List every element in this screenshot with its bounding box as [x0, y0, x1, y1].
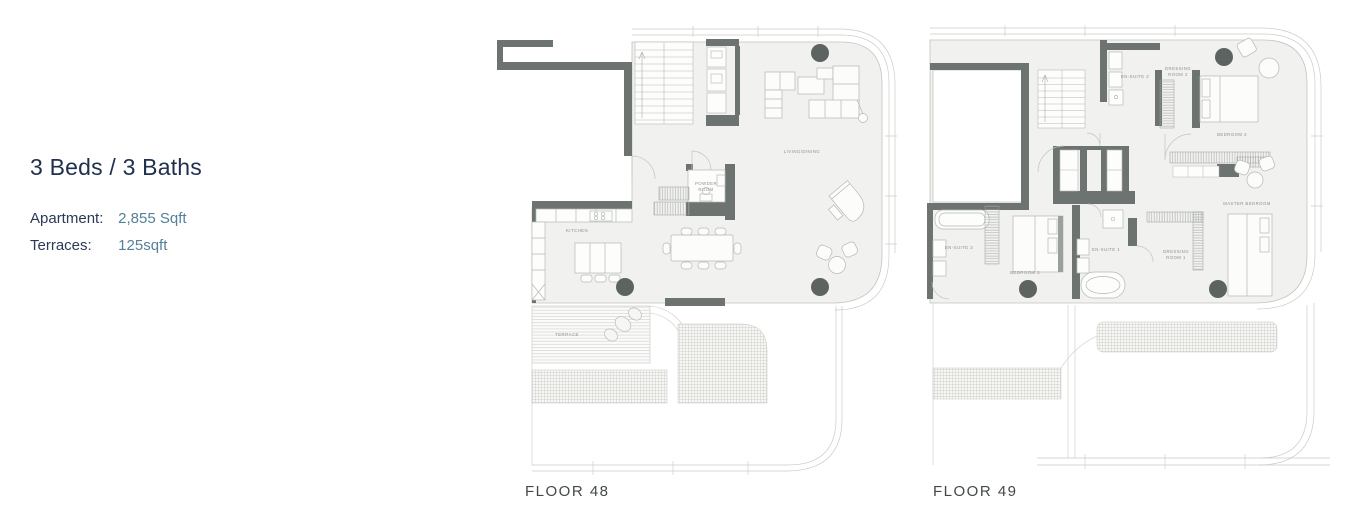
- bedroom-3-label: BEDROOM 3: [1010, 270, 1040, 275]
- bedroom-2-label: BEDROOM 2: [1217, 132, 1247, 137]
- floor-48-drawing: LIVING/DINING KITCHEN POWDER ROOM TERRAC…: [493, 6, 913, 476]
- staircase: [635, 42, 693, 124]
- dressing-room-1-label-line1: DRESSING: [1163, 249, 1189, 254]
- en-suite-2-label: EN-SUITE 2: [1121, 74, 1149, 79]
- dressing-room-1-label-line2: ROOM 1: [1166, 255, 1186, 260]
- en-suite-1-label: EN-SUITE 1: [1092, 247, 1120, 252]
- utility-closet: [707, 47, 726, 113]
- en-suite-3-label: EN-SUITE 3: [945, 245, 973, 250]
- master-bedroom-label: MASTER BEDROOM: [1223, 201, 1271, 206]
- floorplan-floor-48: LIVING/DINING KITCHEN POWDER ROOM TERRAC…: [493, 6, 913, 520]
- unit-title: 3 Beds / 3 Baths: [30, 154, 202, 181]
- site-outline: [933, 303, 1330, 469]
- powder-room-label-line2: ROOM: [698, 187, 713, 192]
- floorplan-floor-49: EN-SUITE 2 DRESSING ROOM 2 BEDROOM 2 MAS…: [925, 6, 1345, 520]
- dressing-room-2-wardrobe: [1160, 80, 1174, 128]
- unit-info: 3 Beds / 3 Baths Apartment: 2,855 Sqft T…: [30, 154, 202, 259]
- staircase: [1038, 70, 1085, 128]
- floor-48-caption: FLOOR 48: [525, 483, 610, 500]
- living-dining-label: LIVING/DINING: [784, 149, 820, 154]
- floor-49-caption: FLOOR 49: [933, 483, 1018, 500]
- powder-room-label-line1: POWDER: [695, 181, 717, 186]
- kitchen-label: KITCHEN: [566, 228, 588, 233]
- terrace-label: TERRACE: [555, 332, 579, 337]
- floorplan-page: 3 Beds / 3 Baths Apartment: 2,855 Sqft T…: [0, 0, 1354, 520]
- spec-apartment-value: 2,855 Sqft: [118, 210, 186, 227]
- bedroom-3-furniture: [1013, 216, 1063, 272]
- floor-49-drawing: EN-SUITE 2 DRESSING ROOM 2 BEDROOM 2 MAS…: [925, 6, 1345, 476]
- spec-terraces-label: Terraces:: [30, 232, 114, 259]
- spec-terraces-value: 125sqft: [118, 237, 167, 254]
- spec-apartment: Apartment: 2,855 Sqft: [30, 205, 202, 232]
- spec-apartment-label: Apartment:: [30, 205, 114, 232]
- dressing-room-2-label-line1: DRESSING: [1165, 66, 1191, 71]
- dressing-room-2-label-line2: ROOM 2: [1168, 72, 1188, 77]
- spec-terraces: Terraces: 125sqft: [30, 232, 202, 259]
